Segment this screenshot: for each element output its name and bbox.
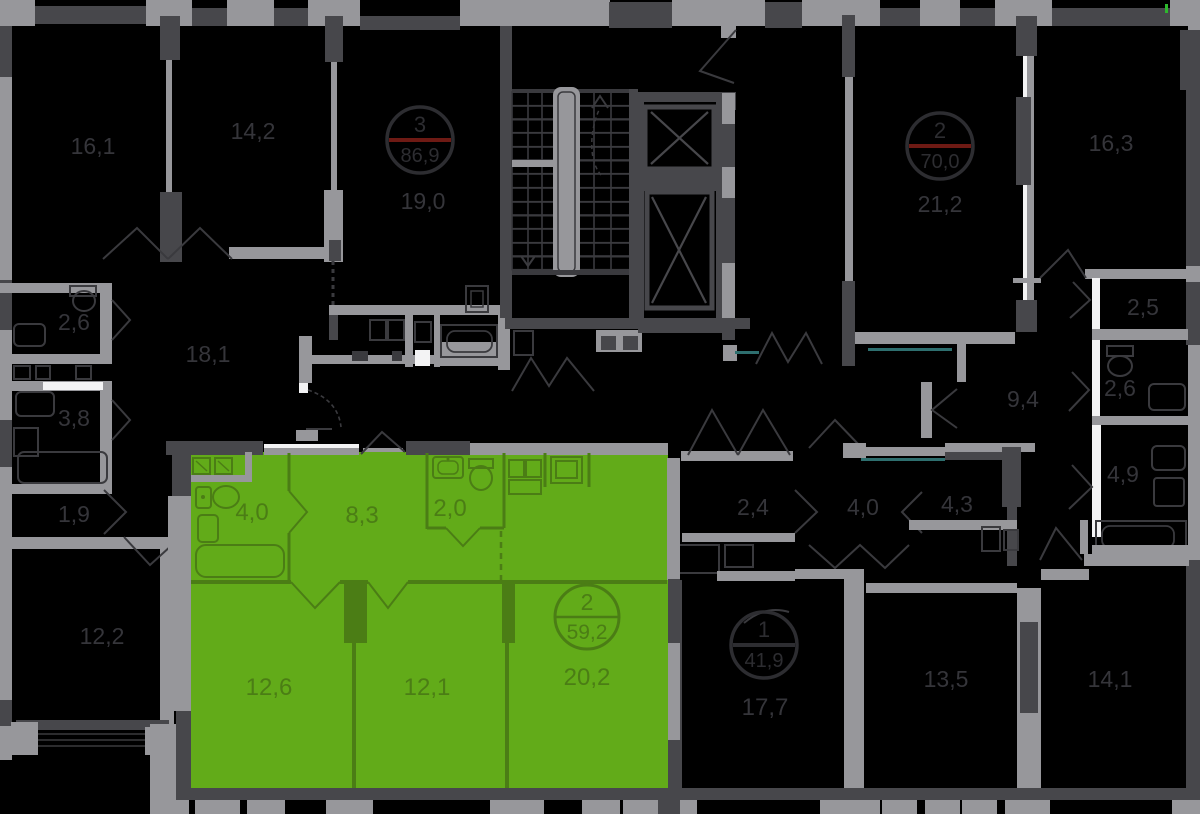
svg-text:2,6: 2,6 — [58, 309, 90, 335]
svg-text:16,1: 16,1 — [71, 133, 116, 159]
svg-text:3: 3 — [414, 112, 426, 137]
svg-text:14,2: 14,2 — [231, 118, 276, 144]
svg-text:2,4: 2,4 — [737, 494, 769, 520]
svg-text:14,1: 14,1 — [1088, 666, 1133, 692]
svg-text:2,6: 2,6 — [1104, 375, 1136, 401]
svg-text:59,2: 59,2 — [567, 621, 608, 644]
svg-text:70,0: 70,0 — [921, 151, 960, 173]
svg-text:12,6: 12,6 — [246, 674, 293, 701]
svg-text:4,3: 4,3 — [941, 491, 973, 517]
svg-text:9,4: 9,4 — [1007, 386, 1039, 412]
svg-text:21,2: 21,2 — [918, 191, 963, 217]
svg-text:20,2: 20,2 — [564, 664, 611, 691]
svg-text:3,8: 3,8 — [58, 405, 90, 431]
svg-text:2,5: 2,5 — [1127, 294, 1159, 320]
svg-text:16,3: 16,3 — [1089, 130, 1134, 156]
svg-text:4,9: 4,9 — [1107, 461, 1139, 487]
svg-text:2: 2 — [934, 118, 946, 143]
svg-text:86,9: 86,9 — [401, 145, 440, 167]
svg-text:8,3: 8,3 — [345, 502, 378, 529]
svg-text:1: 1 — [758, 617, 770, 642]
svg-text:13,5: 13,5 — [924, 666, 969, 692]
svg-text:1,9: 1,9 — [58, 501, 90, 527]
svg-text:18,1: 18,1 — [186, 341, 231, 367]
svg-text:41,9: 41,9 — [745, 650, 784, 672]
svg-text:19,0: 19,0 — [401, 188, 446, 214]
svg-text:12,1: 12,1 — [404, 674, 451, 701]
svg-text:2,0: 2,0 — [433, 495, 466, 522]
svg-text:4,0: 4,0 — [847, 494, 879, 520]
svg-text:17,7: 17,7 — [742, 694, 789, 721]
svg-text:12,2: 12,2 — [80, 623, 125, 649]
svg-text:2: 2 — [581, 589, 594, 615]
svg-text:4,0: 4,0 — [235, 499, 268, 526]
